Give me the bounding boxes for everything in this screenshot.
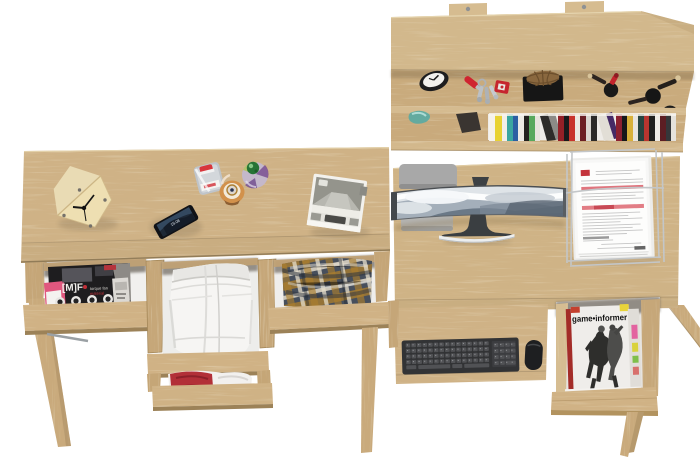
svg-text:[M]F: [M]F <box>62 282 83 294</box>
svg-text:game•informer: game•informer <box>572 312 628 324</box>
